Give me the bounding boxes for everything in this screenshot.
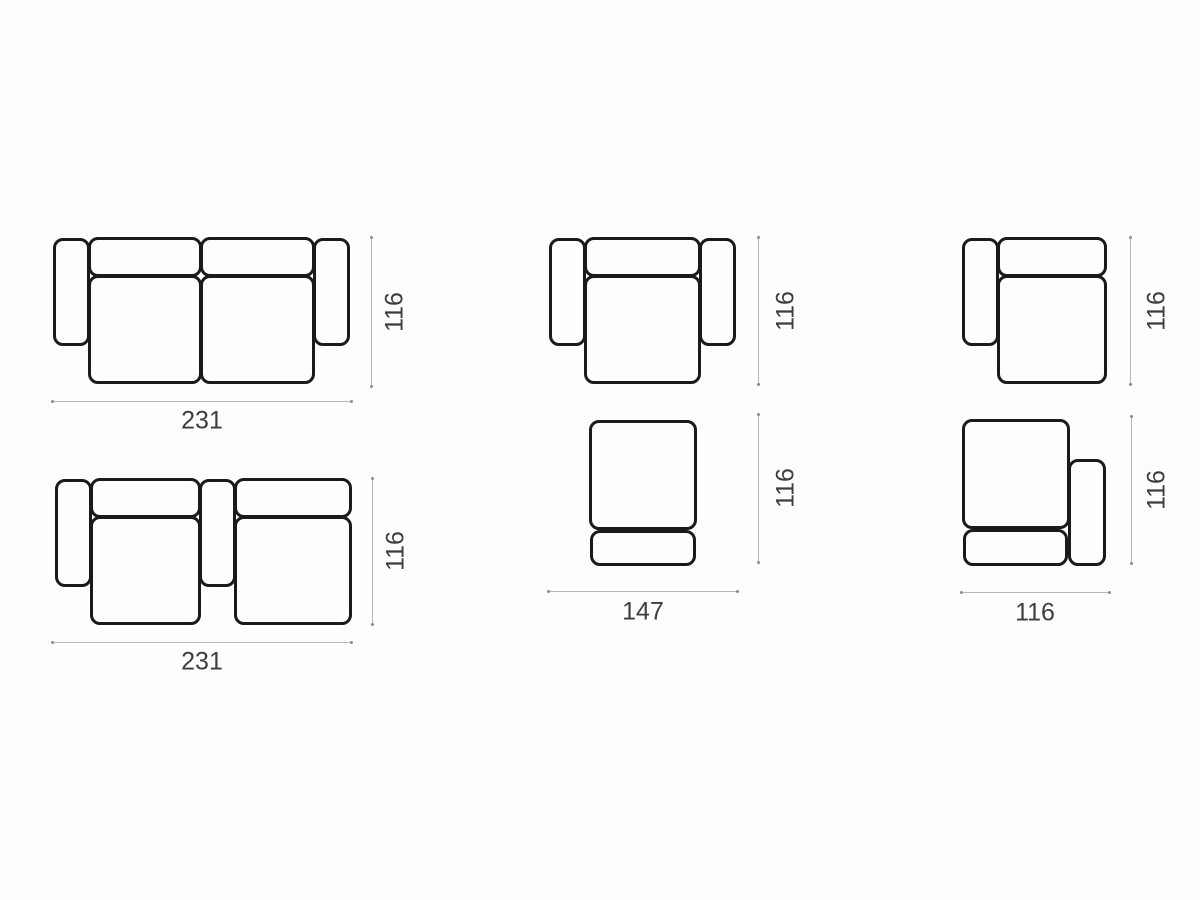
dimension-spec-sheet: 116 231 116 231 116 116 147 116 (0, 0, 1200, 900)
depth-dimension-label: 116 (383, 292, 408, 332)
depth-dimension-line (758, 237, 759, 385)
depth-dimension-line (1130, 237, 1131, 385)
right-armrest (699, 238, 736, 346)
seat-cushion (962, 419, 1070, 529)
back-cushion-right (234, 478, 352, 518)
depth-dimension-label: 116 (774, 291, 799, 331)
width-dimension-label: 147 (622, 600, 664, 625)
seat-cushion-right (234, 516, 352, 625)
back-cushion-left (90, 478, 201, 518)
center-armrest (199, 479, 236, 587)
width-dimension-line (52, 401, 352, 402)
left-armrest (962, 238, 999, 346)
depth-dimension-label: 116 (384, 531, 409, 571)
depth-dimension-label: 116 (1145, 470, 1170, 510)
depth-dimension-label: 116 (1145, 291, 1170, 331)
width-dimension-line (52, 642, 352, 643)
seat-cushion-left (88, 275, 202, 384)
seat-cushion (997, 275, 1107, 384)
back-cushion (997, 237, 1107, 277)
back-cushion (584, 237, 701, 277)
width-dimension-label: 116 (1015, 601, 1055, 626)
right-armrest (313, 238, 350, 346)
depth-dimension-line (758, 414, 759, 563)
width-dimension-label: 231 (181, 650, 223, 675)
width-dimension-label: 231 (181, 409, 223, 434)
diagram-module-left-arm (962, 237, 1107, 384)
back-cushion (590, 530, 696, 566)
diagram-module-armless (589, 420, 697, 566)
diagram-sofa-two-seat-both-arms (53, 237, 350, 384)
depth-dimension-line (372, 478, 373, 625)
width-dimension-line (961, 592, 1110, 593)
width-dimension-line (548, 591, 738, 592)
back-cushion (963, 529, 1068, 566)
back-cushion-left (88, 237, 202, 277)
back-cushion-right (200, 237, 315, 277)
seat-cushion (584, 275, 701, 384)
diagram-module-right-arm (962, 419, 1107, 566)
left-armrest (55, 479, 92, 587)
seat-cushion (589, 420, 697, 530)
seat-cushion-right (200, 275, 315, 384)
left-armrest (53, 238, 90, 346)
left-armrest (549, 238, 586, 346)
right-armrest (1068, 459, 1106, 566)
depth-dimension-line (1131, 416, 1132, 564)
diagram-sofa-two-seat-center-arm (55, 478, 352, 625)
diagram-armchair-both-arms (549, 237, 736, 384)
depth-dimension-label: 116 (774, 468, 799, 508)
depth-dimension-line (371, 237, 372, 387)
seat-cushion-left (90, 516, 201, 625)
